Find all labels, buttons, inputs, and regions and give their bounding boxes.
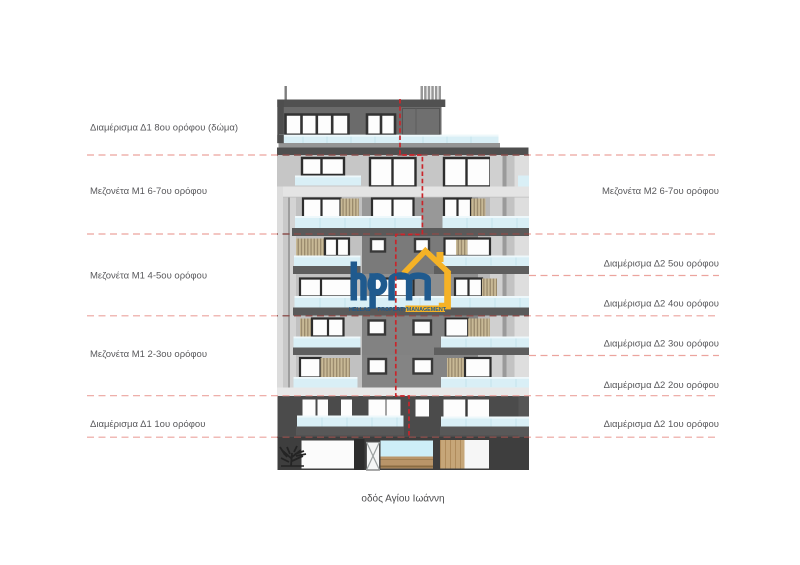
svg-text:Διαμέρισμα Δ2 5ου ορόφου: Διαμέρισμα Δ2 5ου ορόφου [604, 258, 719, 269]
svg-text:Μεζονέτα Μ1 4-5ου ορόφου: Μεζονέτα Μ1 4-5ου ορόφου [90, 271, 207, 282]
svg-text:Μεζονέτα Μ1 2-3ου ορόφου: Μεζονέτα Μ1 2-3ου ορόφου [90, 349, 207, 360]
svg-text:Μεζονέτα Μ2 6-7ου ορόφου: Μεζονέτα Μ2 6-7ου ορόφου [602, 186, 719, 197]
svg-text:οδός Αγίου Ιωάννη: οδός Αγίου Ιωάννη [361, 493, 444, 505]
svg-text:Διαμέρισμα Δ1 1ου ορόφου: Διαμέρισμα Δ1 1ου ορόφου [90, 419, 205, 430]
svg-text:HELLAS: HELLAS [349, 307, 371, 313]
svg-text:Διαμέρισμα Δ1 8ου ορόφου (δώμα: Διαμέρισμα Δ1 8ου ορόφου (δώμα) [90, 123, 238, 134]
svg-text:MANAGEMENT: MANAGEMENT [407, 307, 447, 313]
svg-text:Διαμέρισμα Δ2 2ου ορόφου: Διαμέρισμα Δ2 2ου ορόφου [604, 380, 719, 391]
svg-text:Διαμέρισμα Δ2 4ου ορόφου: Διαμέρισμα Δ2 4ου ορόφου [604, 299, 719, 310]
svg-text:Διαμέρισμα Δ2 1ου ορόφου: Διαμέρισμα Δ2 1ου ορόφου [604, 419, 719, 430]
svg-text:Διαμέρισμα Δ2 3ου ορόφου: Διαμέρισμα Δ2 3ου ορόφου [604, 339, 719, 350]
svg-text:PROPERTY: PROPERTY [378, 307, 408, 313]
svg-text:Μεζονέτα Μ1 6-7ου ορόφου: Μεζονέτα Μ1 6-7ου ορόφου [90, 186, 207, 197]
